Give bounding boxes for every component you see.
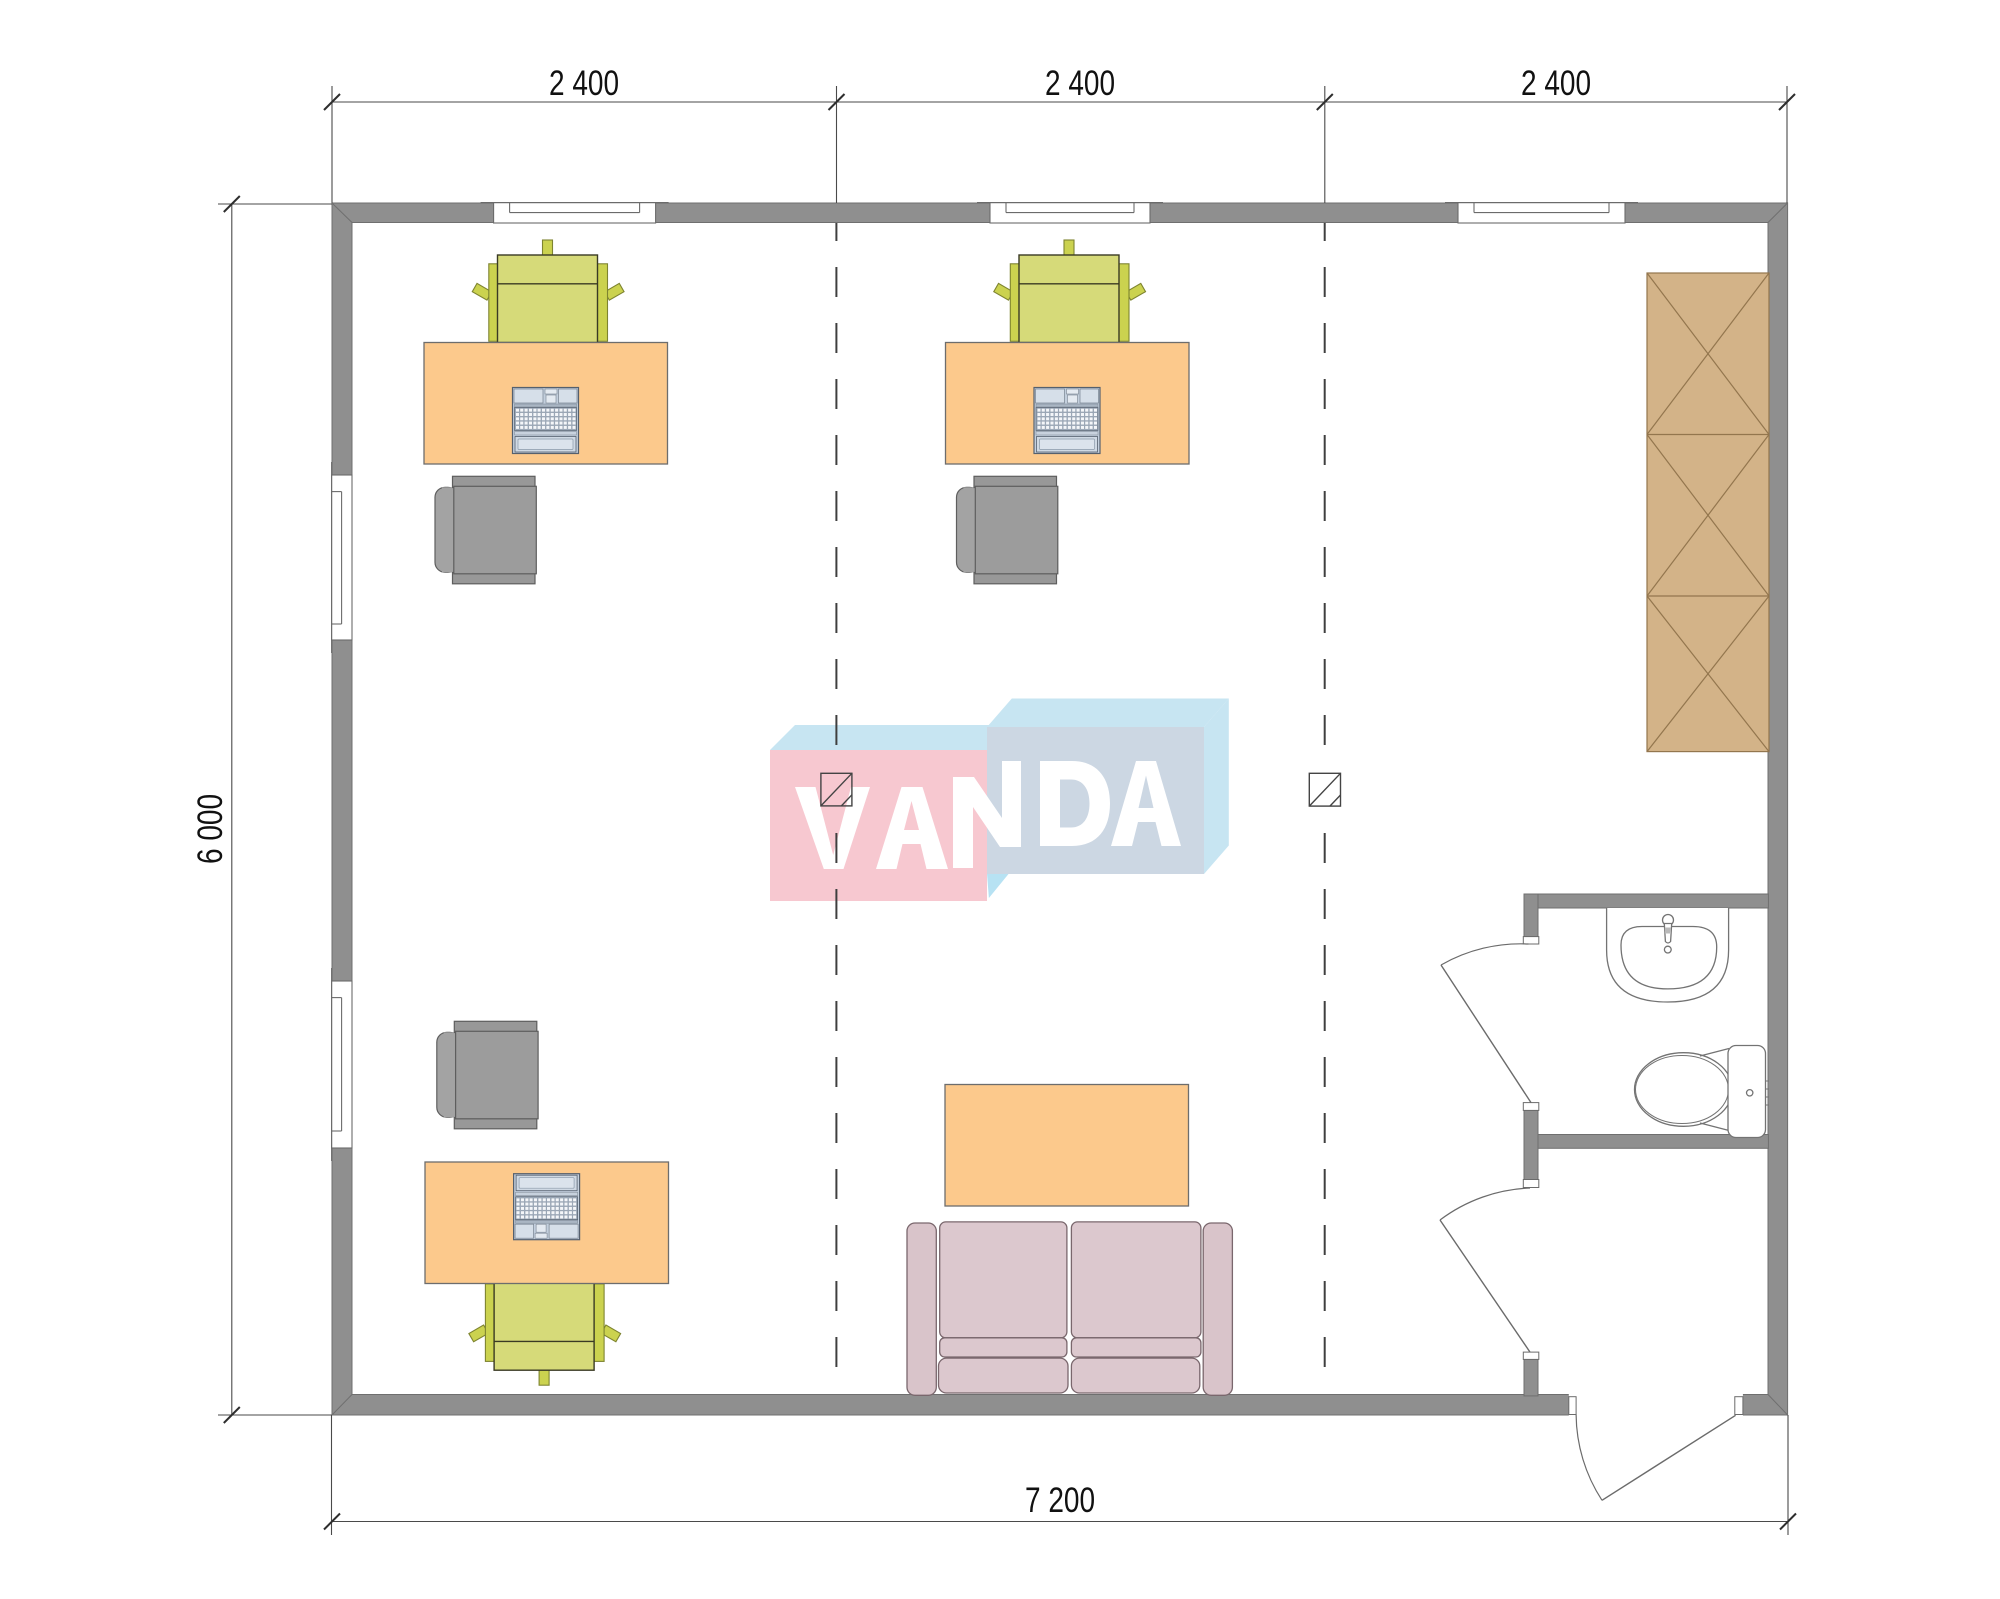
svg-text:7 200: 7 200 <box>1025 1480 1095 1520</box>
svg-text:2 400: 2 400 <box>1521 63 1591 103</box>
svg-text:2 400: 2 400 <box>1045 63 1115 103</box>
svg-text:2 400: 2 400 <box>549 63 619 103</box>
svg-text:6 000: 6 000 <box>190 794 230 864</box>
